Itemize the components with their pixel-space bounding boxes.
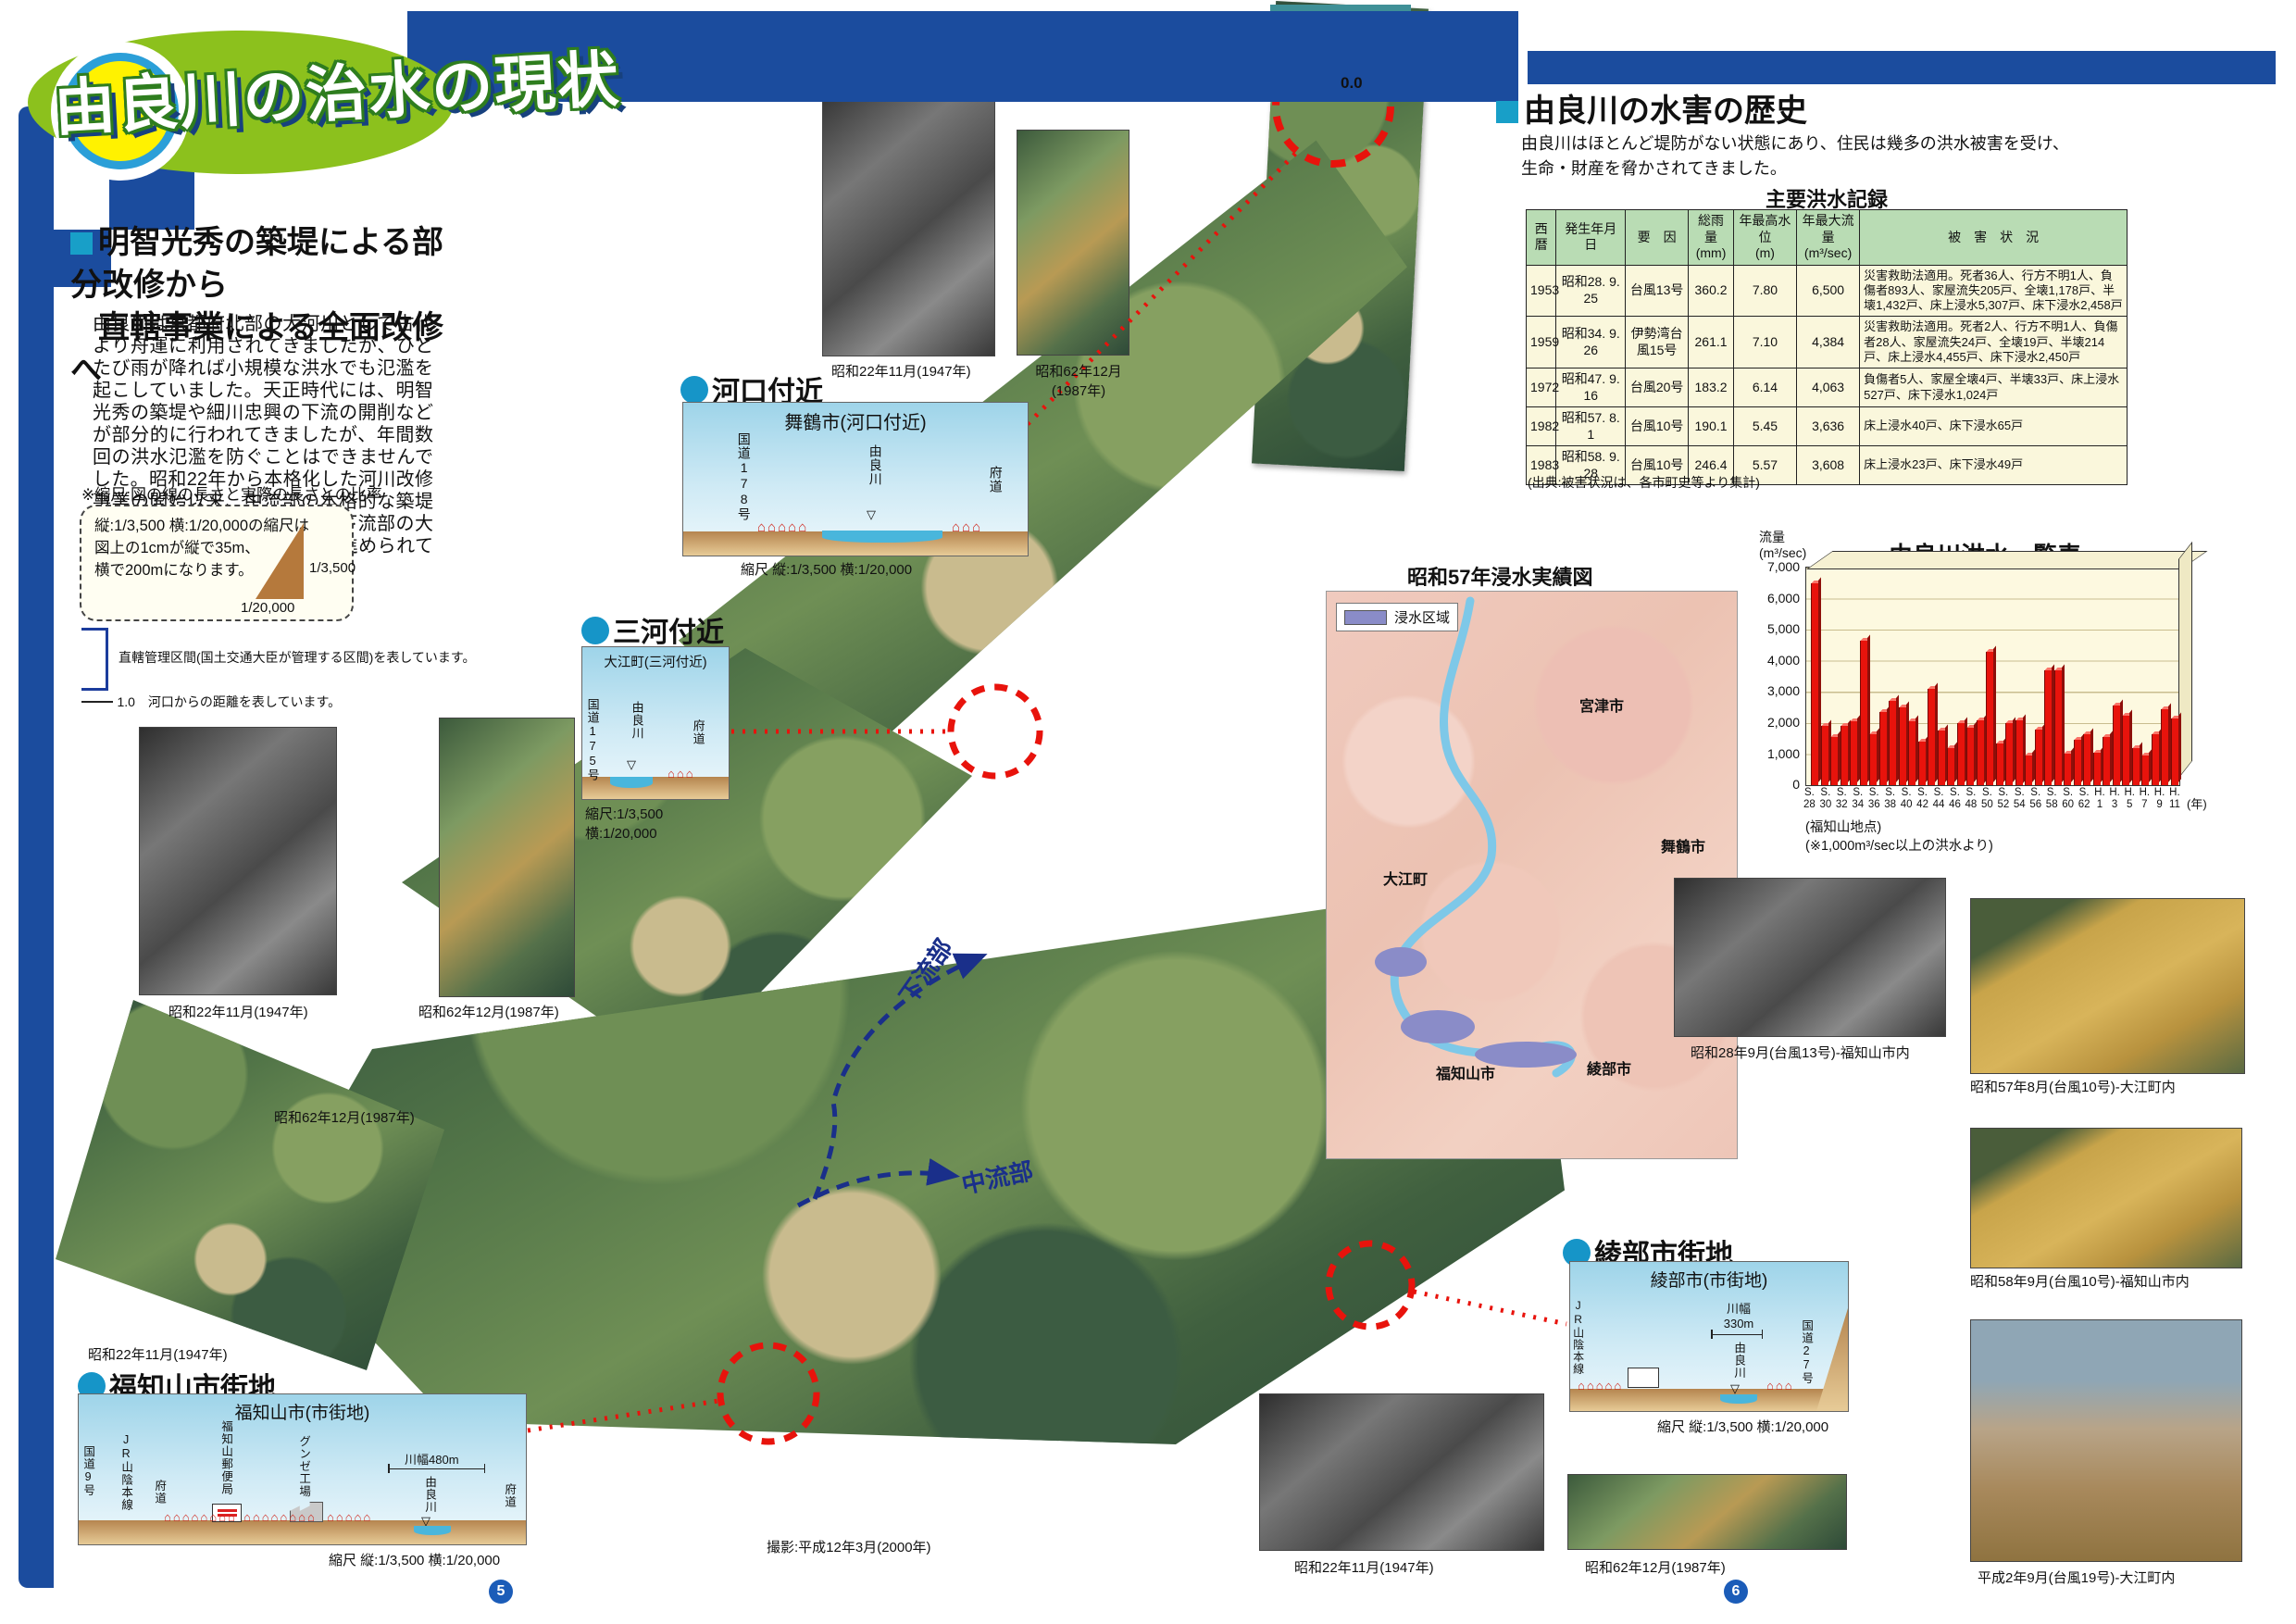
- chart-x-tick: S. 40: [1901, 787, 1913, 810]
- red-circle-mikawa: [951, 687, 1040, 776]
- table-cell: 5.45: [1733, 407, 1796, 446]
- floodmap-legend-label: 浸水区域: [1394, 607, 1450, 627]
- xsec-label-road-right: 府道: [989, 466, 1003, 493]
- river-width-measure: [388, 1468, 485, 1469]
- flood-record-table: 西暦発生年月日要 因総雨量 (mm)年最高水位 (m)年最大流量 (m³/sec…: [1526, 209, 2128, 485]
- chart-x-tick: H. 3: [2109, 787, 2120, 810]
- chart-y-tick: 2,000: [1757, 715, 1800, 730]
- table-cell: 災害救助法適用。死者36人、行方不明1人、負傷者893人、家屋流失205戸、全壊…: [1860, 265, 2128, 317]
- xsec-water: [1720, 1394, 1757, 1404]
- table-header-cell: 被 害 状 況: [1860, 210, 2128, 266]
- chart-bar: [1841, 726, 1848, 785]
- table-header-cell: 発生年月日: [1556, 210, 1626, 266]
- chart-bar: [1908, 721, 1915, 785]
- chart-bar: [2025, 756, 2032, 785]
- chart-x-tick: S. 44: [1933, 787, 1945, 810]
- chart-x-tick: H. 7: [2140, 787, 2151, 810]
- table-cell: 床上浸水23戸、床下浸水49戸: [1860, 446, 2128, 485]
- history-heading: 由良川の水害の歴史: [1496, 85, 1807, 131]
- table-header-row: 西暦発生年月日要 因総雨量 (mm)年最高水位 (m)年最大流量 (m³/sec…: [1527, 210, 2128, 266]
- scale-note-title: ※縮尺:図の線の長さと実際の長さとの比率: [81, 481, 382, 505]
- chart-x-tick: S. 50: [1981, 787, 1993, 810]
- aerial-photo-1947-bottom: [1259, 1393, 1544, 1551]
- flood-zone: [1401, 1010, 1475, 1043]
- photo-caption-h2: 平成2年9月(台風19号)-大江町内: [1978, 1568, 2175, 1587]
- table-cell: 床上浸水40戸、床下浸水65戸: [1860, 407, 2128, 446]
- table-cell: 1959: [1527, 317, 1556, 369]
- chart-bar: [2171, 718, 2178, 785]
- aerial-photo-1947-top: [822, 81, 995, 356]
- chart-y-tick: 5,000: [1757, 621, 1800, 636]
- distance-0-label: 0.0: [1341, 74, 1363, 93]
- history-heading-label: 由良川の水害の歴史: [1524, 94, 1807, 129]
- flood-zone-swatch-icon: [1344, 610, 1387, 625]
- xsec-water: [414, 1526, 451, 1535]
- table-header-cell: 年最大流量 (m³/sec): [1797, 210, 1860, 266]
- photo-caption: 昭和22年11月(1947年): [1294, 1557, 1434, 1577]
- chart-bar: [2015, 720, 2023, 786]
- chart-y-tick: 4,000: [1757, 653, 1800, 668]
- chart-bar: [2122, 716, 2129, 786]
- chart-x-axis-unit: (年): [2187, 794, 2207, 812]
- kanri-bracket-icon: [81, 628, 108, 691]
- xsec-label-river: 由良川: [423, 1476, 435, 1514]
- chart-x-tick: S. 46: [1949, 787, 1961, 810]
- houses-icon-row: [1578, 1379, 1623, 1393]
- intro-heading-line1: 明智光秀の築堤による部分改修から: [70, 225, 443, 303]
- photo-caption-s28: 昭和28年9月(台風13号)-福知山市内: [1691, 1043, 1910, 1062]
- left-border-bar: [19, 106, 54, 1588]
- chart-x-tick: H. 1: [2094, 787, 2105, 810]
- chart-bar: [1996, 743, 2003, 785]
- distance-dot-line-icon: [81, 693, 113, 703]
- xsec-ground: [582, 777, 729, 799]
- chart-bar: [1869, 734, 1877, 785]
- chart-bar: [2064, 754, 2071, 785]
- xsec-label-route27: 国道27号: [1800, 1319, 1812, 1385]
- chart-bar: [1850, 721, 1857, 785]
- table-header-cell: 総雨量 (mm): [1689, 210, 1734, 266]
- xsec-label-post-office: 福知山郵便局: [219, 1420, 231, 1495]
- xsec-mikawa: 大江町(三河付近) 国道175号 由良川 府道: [581, 646, 730, 800]
- table-cell: 190.1: [1689, 407, 1734, 446]
- page-number-right: 6: [1724, 1580, 1748, 1604]
- chart-x-tick: S. 38: [1884, 787, 1896, 810]
- table-cell: 1972: [1527, 369, 1556, 407]
- chart-bar: [2103, 737, 2110, 785]
- chart-x-tick: H. 5: [2124, 787, 2135, 810]
- chart-note-2: (※1,000m³/sec以上の洪水より): [1805, 835, 1993, 855]
- chart-x-tick: S. 48: [1965, 787, 1978, 810]
- chart-bar: [2141, 756, 2149, 785]
- table-cell: 4,384: [1797, 317, 1860, 369]
- chart-note-1: (福知山地点): [1805, 817, 1881, 836]
- flood-table-source: (出典:被害状況は、各市町史等より集計): [1528, 473, 1760, 492]
- xsec-kakou-scale: 縮尺 縦:1/3,500 横:1/20,000: [741, 559, 912, 579]
- xsec-label-river: 由良川: [868, 444, 882, 486]
- aerial-photo-1987-top: [1017, 130, 1129, 356]
- table-header-cell: 年最高水位 (m): [1733, 210, 1796, 266]
- chart-x-tick: S. 30: [1819, 787, 1831, 810]
- xsec-label-river-width: 川幅 330m: [1715, 1299, 1763, 1330]
- flood-zone: [1375, 947, 1427, 977]
- photo-caption: 昭和62年12月(1987年): [418, 1002, 559, 1021]
- chart-bar: [2005, 723, 2013, 785]
- chart-bar: [1966, 728, 1974, 785]
- chart-bar: [2054, 670, 2062, 785]
- photo-caption: 昭和22年11月(1947年): [88, 1344, 228, 1364]
- xsec-label-river-width: 川幅480m: [405, 1450, 459, 1468]
- photo-caption-s57: 昭和57年8月(台風10号)-大江町内: [1970, 1077, 2176, 1096]
- table-cell: 伊勢湾台風15号: [1626, 317, 1689, 369]
- table-cell: 負傷者5人、家屋全壊4戸、半壊33戸、床上浸水527戸、床下浸水1,024戸: [1860, 369, 2128, 407]
- xsec-water: [822, 531, 942, 543]
- shoot-date-caption: 撮影:平成12年3月(2000年): [767, 1537, 931, 1556]
- chart-bar: [1957, 723, 1965, 785]
- chart-bar: [1889, 701, 1896, 785]
- table-cell: 台風20号: [1626, 369, 1689, 407]
- chart-bar: [2132, 748, 2140, 785]
- history-body: 由良川はほとんど堤防がない状態にあり、住民は幾多の洪水被害を受け、 生命・財産を…: [1521, 131, 2114, 181]
- chart-bar: [1860, 641, 1867, 785]
- photo-caption: 昭和22年11月(1947年): [168, 1002, 308, 1021]
- chart-x-tick: S. 42: [1916, 787, 1928, 810]
- table-row: 1972昭和47. 9. 16台風20号183.26.144,063負傷者5人、…: [1527, 369, 2128, 407]
- table-cell: 3,608: [1797, 446, 1860, 485]
- table-row: 1982昭和57. 8. 1台風10号190.15.453,636床上浸水40戸…: [1527, 407, 2128, 446]
- aerial-photo-1947-mid: [139, 727, 337, 995]
- distance-legend-label: 1.0 河口からの距離を表しています。: [117, 694, 341, 709]
- section-mikawa-heading: 三河付近: [581, 609, 724, 650]
- chart-bar: [1928, 689, 1935, 785]
- river-path: [1394, 601, 1571, 1073]
- table-cell: 4,063: [1797, 369, 1860, 407]
- xsec-label-gunze-factory: グンゼ工場: [297, 1435, 309, 1498]
- xsec-label-route9: 国道9号: [81, 1445, 94, 1497]
- table-cell: 台風13号: [1626, 265, 1689, 317]
- flood-chart-plot: [1805, 567, 2180, 786]
- houses-icon-row: [952, 519, 982, 535]
- kanri-legend-label: 直轄管理区間(国土交通大臣が管理する区間)を表しています。: [119, 648, 476, 667]
- chart-bar: [2113, 706, 2120, 785]
- xsec-label-river: 由良川: [630, 701, 643, 740]
- houses-icon-row: [164, 1510, 237, 1524]
- xsec-ayabe-title: 綾部市(市街地): [1570, 1267, 1848, 1292]
- chart-y-tick: 6,000: [1757, 591, 1800, 606]
- xsec-water: [610, 777, 653, 788]
- photo-h2-flood: [1970, 1319, 2242, 1562]
- chart-bar: [2074, 740, 2081, 785]
- brochure-page: 由良川の治水の現状 明智光秀の築堤による部分改修から 直轄事業による全面改修へ …: [0, 0, 2296, 1624]
- chart-bar: [1918, 742, 1926, 785]
- photo-caption: 昭和62年12月 (1987年): [1018, 361, 1139, 400]
- table-header-cell: 要 因: [1626, 210, 1689, 266]
- chart-x-tick: H. 9: [2154, 787, 2165, 810]
- city-label-fukuchiyama: 福知山市: [1436, 1061, 1495, 1083]
- xsec-label-road-left: 国道175号: [586, 698, 599, 781]
- xsec-fukuchiyama: 福知山市(市街地) 国道9号 JR山陰本線 府道 福知山郵便局 グンゼ工場 川幅…: [78, 1393, 527, 1545]
- houses-icon-row: [1766, 1379, 1794, 1393]
- table-cell: 7.10: [1733, 317, 1796, 369]
- heading-square-icon: [1496, 101, 1518, 123]
- chart-bar: [2044, 670, 2052, 785]
- table-cell: 3,636: [1797, 407, 1860, 446]
- xsec-kakou: 舞鶴市(河口付近) 国道178号 由良川 府道: [682, 402, 1029, 556]
- flood-extent-map: 浸水区域 宮津市 舞鶴市 大江町 福知山市 綾部市: [1326, 591, 1738, 1159]
- city-label-maizuru: 舞鶴市: [1661, 834, 1705, 856]
- xsec-label-road-right: 府道: [692, 719, 705, 745]
- table-cell: 1982: [1527, 407, 1556, 446]
- table-cell: 183.2: [1689, 369, 1734, 407]
- chart-y-tick: 1,000: [1757, 746, 1800, 761]
- section-bullet-icon: [581, 617, 609, 644]
- red-dotted-link-ayabe: [1414, 1292, 1566, 1324]
- chart-x-tick: S. 60: [2062, 787, 2074, 810]
- xsec-label-fudo-left: 府道: [153, 1480, 165, 1505]
- table-cell: 6.14: [1733, 369, 1796, 407]
- photo-caption: 昭和62年12月(1987年): [274, 1107, 415, 1127]
- houses-icon-row: [243, 1510, 317, 1524]
- aerial-photo-1987-mid: [439, 718, 575, 997]
- xsec-label-jr-line: JR山陰本線: [119, 1433, 131, 1511]
- chart-bar: [2035, 730, 2042, 785]
- xsec-ayabe-scale: 縮尺 縦:1/3,500 横:1/20,000: [1657, 1417, 1828, 1436]
- table-cell: 261.1: [1689, 317, 1734, 369]
- city-label-oe: 大江町: [1383, 867, 1428, 889]
- water-level-icon: [627, 756, 636, 773]
- city-label-miyazu: 宮津市: [1579, 693, 1624, 716]
- table-cell: 昭和47. 9. 16: [1556, 369, 1626, 407]
- table-cell: 昭和34. 9. 26: [1556, 317, 1626, 369]
- city-label-ayabe: 綾部市: [1587, 1056, 1631, 1079]
- photo-caption: 昭和62年12月(1987年): [1585, 1557, 1726, 1577]
- table-cell: 360.2: [1689, 265, 1734, 317]
- chart-y-tick: 3,000: [1757, 683, 1800, 698]
- table-header-cell: 西暦: [1527, 210, 1556, 266]
- xsec-label-river: 由良川: [1732, 1342, 1744, 1380]
- chart-x-tick: S. 62: [2078, 787, 2090, 810]
- xsec-fukuchiyama-title: 福知山市(市街地): [79, 1399, 526, 1424]
- chart-bar: [1830, 737, 1838, 785]
- chart-bar: [1879, 712, 1887, 785]
- aerial-photo-1987-bottom: [1567, 1474, 1847, 1550]
- floodmap-legend: 浸水区域: [1336, 603, 1458, 631]
- chart-y-tick: 7,000: [1757, 559, 1800, 574]
- chart-x-tick: S. 56: [2029, 787, 2041, 810]
- chart-bar: [1938, 731, 1945, 785]
- photo-s28-flood: [1674, 878, 1946, 1037]
- table-cell: 台風10号: [1626, 407, 1689, 446]
- photo-s58-flood: [1970, 1128, 2242, 1268]
- photo-caption: 昭和22年11月(1947年): [831, 361, 971, 381]
- houses-icon-row: [327, 1510, 372, 1524]
- floodmap-title: 昭和57年浸水実績図: [1407, 561, 1592, 591]
- table-cell: 昭和57. 8. 1: [1556, 407, 1626, 446]
- section-mikawa-label: 三河付近: [613, 618, 724, 648]
- chart-y-axis-label: 流量 (m³/sec): [1759, 530, 1806, 561]
- scale-triangle-h-label: 1/20,000: [241, 600, 294, 616]
- chart-x-tick: S. 54: [2014, 787, 2026, 810]
- table-cell: 災害救助法適用。死者2人、行方不明1人、負傷者28人、家屋流失24戸、全壊19戸…: [1860, 317, 2128, 369]
- chart-bar: [2161, 709, 2168, 785]
- table-row: 1953昭和28. 9. 25台風13号360.27.806,500災害救助法適…: [1527, 265, 2128, 317]
- building-icon: [1628, 1368, 1659, 1388]
- chart-bar: [2152, 734, 2159, 785]
- chart-bar: [1947, 748, 1954, 785]
- title-band-right: [1528, 51, 2276, 84]
- river-width-measure: [1711, 1334, 1763, 1335]
- xsec-label-road-left: 国道178号: [737, 432, 751, 521]
- table-cell: 1953: [1527, 265, 1556, 317]
- photo-s57-flood: [1970, 898, 2245, 1074]
- chart-x-tick: S. 52: [1997, 787, 2009, 810]
- xsec-ayabe: 綾部市(市街地) JR山陰本線 川幅 330m 由良川 国道27号: [1569, 1261, 1849, 1412]
- chart-bar: [1821, 726, 1828, 785]
- chart-y-tick: 0: [1757, 777, 1800, 792]
- xsec-mikawa-title: 大江町(三河付近): [582, 652, 729, 671]
- chart-bar: [1977, 720, 1984, 786]
- scale-triangle-v-label: 1/3,500: [309, 560, 356, 576]
- table-cell: 昭和28. 9. 25: [1556, 265, 1626, 317]
- distance-legend: 1.0 河口からの距離を表しています。: [81, 693, 341, 711]
- chart-x-tick: H. 11: [2169, 787, 2180, 810]
- table-row: 1959昭和34. 9. 26伊勢湾台風15号261.17.104,384災害救…: [1527, 317, 2128, 369]
- page-number-left: 5: [489, 1580, 513, 1604]
- xsec-label-fudo-right: 府道: [503, 1483, 515, 1508]
- chart-bar: [1986, 652, 1993, 785]
- houses-icon-row: [668, 767, 695, 781]
- chart-x-tick: S. 32: [1836, 787, 1848, 810]
- chart-y-ticks: 7,0006,0005,0004,0003,0002,0001,0000: [1757, 559, 1800, 784]
- xsec-kakou-title: 舞鶴市(河口付近): [683, 407, 1028, 434]
- table-cell: 7.80: [1733, 265, 1796, 317]
- scale-triangle: [256, 523, 304, 599]
- section-bullet-icon: [680, 376, 708, 404]
- xsec-mikawa-scale: 縮尺:1/3,500 横:1/20,000: [585, 804, 663, 843]
- chart-bar: [2083, 734, 2090, 785]
- table-cell: 6,500: [1797, 265, 1860, 317]
- chart-bar: [1811, 583, 1818, 785]
- photo-caption-s58: 昭和58年9月(台風10号)-福知山市内: [1970, 1271, 2190, 1291]
- chart-x-tick: S. 36: [1868, 787, 1880, 810]
- xsec-fukuchiyama-scale: 縮尺 縦:1/3,500 横:1/20,000: [329, 1550, 500, 1569]
- water-level-icon: [867, 506, 876, 523]
- chart-bar: [2093, 753, 2101, 785]
- chart-x-tick: S. 28: [1803, 787, 1816, 810]
- xsec-label-jr-line: JR山陰本線: [1572, 1299, 1584, 1375]
- chart-bar: [1899, 707, 1906, 785]
- heading-square-icon: [70, 232, 93, 255]
- scale-note-box: 縦:1/3,500 横:1/20,000の縮尺は 図上の1cmが縦で35m、 横…: [80, 505, 354, 621]
- houses-icon-row: [757, 519, 808, 535]
- chart-x-tick: S. 34: [1852, 787, 1864, 810]
- chart-x-ticks: S. 28S. 30S. 32S. 34S. 36S. 38S. 40S. 42…: [1803, 787, 2180, 810]
- chart-x-tick: S. 58: [2046, 787, 2058, 810]
